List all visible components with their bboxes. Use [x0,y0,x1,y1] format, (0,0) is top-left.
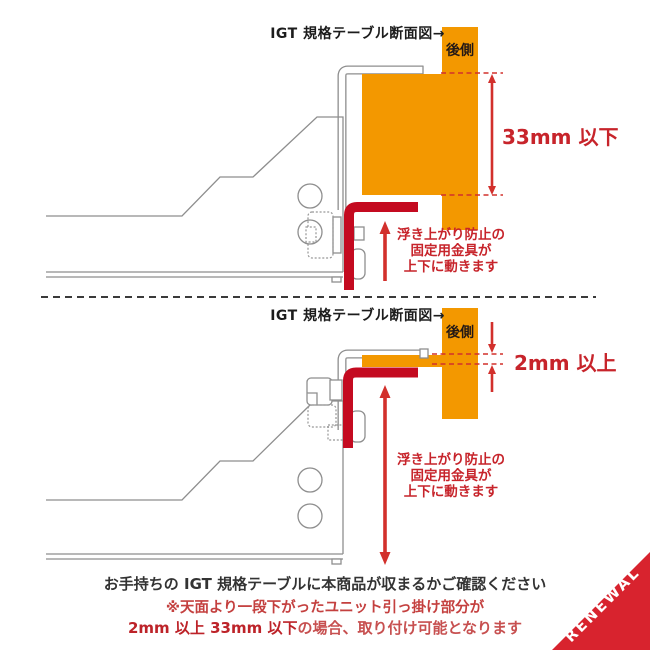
note-line: 固定用金具が [385,468,517,484]
bracket-tab [330,380,342,400]
rear-panel-hook-thick [362,74,442,195]
rear-panel-hook-thin [362,355,442,367]
bottom-rear-side-label: 後側 [446,322,474,342]
top-section-label: IGT 規格テーブル断面図→ [270,23,445,43]
note-line: 上下に動きます [385,484,517,500]
bottom-diagram-lineart [46,354,421,564]
top-dimension-label: 33mm 以下 [502,121,618,150]
footer-note-line-1: お手持ちの IGT 規格テーブルに本商品が収まるかご確認ください [0,573,650,594]
top-rear-side-label: 後側 [446,40,474,60]
table-foot [332,559,341,564]
bottom-bracket-note: 浮き上がり防止の 固定用金具が 上下に動きます [385,452,517,500]
note-line: 固定用金具が [385,243,517,259]
footer-note-line-2: ※天面より一段下がったユニット引っ掛け部分が [0,596,650,617]
bottom-dimension-label: 2mm 以上 [514,347,617,376]
product-diagram-image: RENEWAL IGT 規格テーブル断面図→ 後側 33mm 以下 浮き上がり防… [0,0,650,650]
footer-note-line-3-rest: の場合、取り付け可能となります [297,619,522,637]
rail-tab [333,217,341,253]
note-line: 浮き上がり防止の [385,227,517,243]
bottom-section-label: IGT 規格テーブル断面図→ [270,305,445,325]
bracket-tab [354,227,364,240]
footer-note-line-3: 2mm 以上 33mm 以下の場合、取り付け可能となります [0,617,650,638]
note-line: 浮き上がり防止の [385,452,517,468]
note-line: 上下に動きます [385,259,517,275]
rail-end-cap [420,349,428,358]
frame-hole [298,504,322,528]
diagram-artwork: RENEWAL [0,0,650,650]
frame-hole [298,468,322,492]
bracket-body-dotted [308,405,336,427]
footer-dimension-range: 2mm 以上 33mm 以下 [128,619,298,637]
bracket-notch [306,227,316,242]
table-foot [332,277,341,282]
table-profile [46,404,311,500]
frame-hole [298,184,322,208]
top-bracket-note: 浮き上がり防止の 固定用金具が 上下に動きます [385,227,517,275]
bracket-body [307,378,332,405]
